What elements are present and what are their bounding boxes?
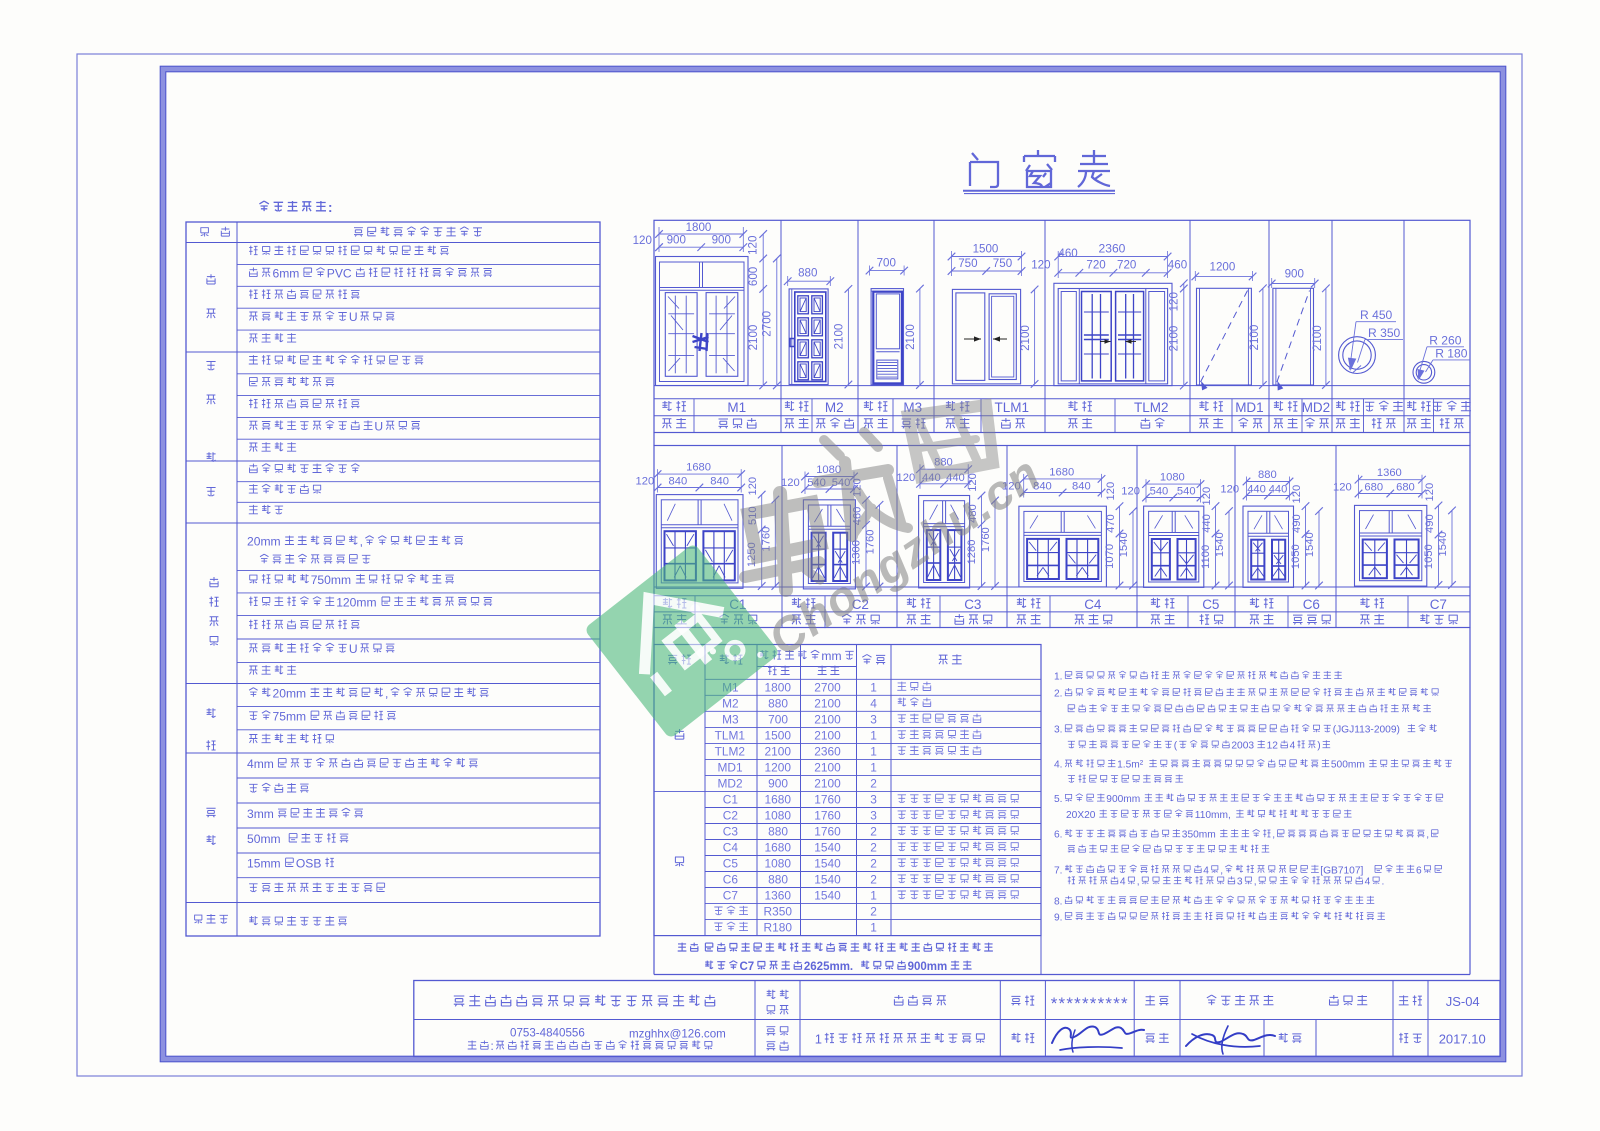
svg-text:4mm: 4mm: [247, 757, 274, 771]
svg-text:4: 4: [1290, 741, 1296, 752]
svg-text:700: 700: [877, 257, 896, 270]
svg-text:1: 1: [815, 1032, 822, 1047]
svg-text:120: 120: [1424, 483, 1436, 502]
svg-text:2: 2: [870, 841, 877, 855]
svg-text:,: ,: [1220, 865, 1223, 876]
svg-text:C4: C4: [723, 841, 739, 855]
svg-text:1200: 1200: [765, 760, 792, 774]
svg-text:U: U: [349, 642, 358, 656]
svg-text:1680: 1680: [765, 793, 792, 807]
svg-text:8.: 8.: [1054, 896, 1063, 907]
svg-text:U: U: [374, 419, 383, 433]
svg-text:2: 2: [870, 873, 877, 887]
svg-text:1080: 1080: [765, 809, 792, 823]
svg-text:50mm: 50mm: [247, 832, 281, 846]
svg-text:R 180: R 180: [1435, 347, 1468, 361]
svg-text:1680: 1680: [1049, 466, 1074, 478]
svg-text:M2: M2: [722, 696, 739, 710]
svg-text:C6: C6: [723, 873, 739, 887]
svg-text:1050: 1050: [1290, 544, 1302, 569]
svg-text:1680: 1680: [765, 841, 792, 855]
svg-text:750: 750: [958, 257, 977, 270]
svg-text:4: 4: [1120, 877, 1126, 888]
svg-text:2100: 2100: [1248, 325, 1261, 351]
svg-text:6mm: 6mm: [273, 266, 300, 280]
svg-text:900: 900: [768, 776, 788, 790]
svg-text:840: 840: [710, 476, 729, 488]
svg-text:1080: 1080: [1160, 472, 1185, 484]
svg-text:C5: C5: [723, 857, 739, 871]
svg-text:120: 120: [897, 472, 916, 484]
svg-text:120: 120: [1220, 484, 1239, 496]
svg-text:.: .: [1382, 877, 1385, 888]
svg-text:680: 680: [1396, 482, 1415, 494]
svg-text:2100: 2100: [765, 744, 792, 758]
svg-text:12: 12: [1267, 741, 1279, 752]
svg-text:3: 3: [1237, 877, 1243, 888]
svg-text:460: 460: [1058, 247, 1077, 260]
svg-text:120: 120: [1291, 485, 1303, 504]
svg-text:TLM1: TLM1: [715, 728, 746, 742]
svg-text:1080: 1080: [765, 857, 792, 871]
svg-text:M1: M1: [727, 400, 746, 415]
svg-text:1: 1: [870, 744, 877, 758]
svg-text:2100: 2100: [814, 712, 841, 726]
svg-text:440: 440: [1269, 484, 1288, 496]
svg-text:C7: C7: [740, 961, 755, 973]
svg-text:OSB: OSB: [296, 857, 322, 871]
svg-text:C1: C1: [723, 793, 739, 807]
svg-text:2003: 2003: [1231, 741, 1254, 752]
svg-text:120: 120: [1168, 292, 1181, 311]
svg-text:120: 120: [1105, 482, 1117, 501]
svg-text:880: 880: [798, 266, 817, 279]
svg-text:4: 4: [1365, 877, 1371, 888]
svg-text:1800: 1800: [765, 680, 792, 694]
svg-text:PVC: PVC: [327, 266, 352, 280]
svg-text:20X20: 20X20: [1066, 810, 1096, 821]
svg-text:540: 540: [1177, 486, 1196, 498]
svg-text:1540: 1540: [814, 873, 841, 887]
svg-text:1760: 1760: [814, 793, 841, 807]
svg-text:C7: C7: [1430, 597, 1447, 612]
svg-text:5.: 5.: [1054, 794, 1063, 805]
svg-text:1760: 1760: [814, 809, 841, 823]
svg-text:C7: C7: [723, 889, 739, 903]
svg-text:1500: 1500: [765, 728, 792, 742]
svg-text:2625mm.: 2625mm.: [804, 961, 853, 973]
svg-text:3: 3: [870, 793, 877, 807]
svg-text:3.: 3.: [1054, 725, 1063, 736]
svg-text:6: 6: [1416, 865, 1422, 876]
svg-text:1: 1: [870, 889, 877, 903]
svg-text:900: 900: [1285, 268, 1304, 281]
svg-text:720: 720: [1117, 258, 1136, 271]
svg-text:470: 470: [1105, 514, 1117, 533]
svg-text:(JGJ113-2009): (JGJ113-2009): [1333, 725, 1400, 736]
svg-text:2100: 2100: [814, 728, 841, 742]
svg-text:,: ,: [1272, 830, 1275, 841]
svg-text:440: 440: [1247, 484, 1266, 496]
svg-text:C2: C2: [723, 809, 739, 823]
svg-text:2100: 2100: [1311, 325, 1324, 351]
svg-text:2700: 2700: [761, 311, 774, 337]
svg-text:6.: 6.: [1054, 830, 1063, 841]
svg-text:): ): [1317, 741, 1320, 752]
svg-text:1: 1: [870, 680, 877, 694]
svg-text:4: 4: [870, 696, 877, 710]
svg-text:20mm: 20mm: [273, 687, 307, 701]
svg-text:2100: 2100: [814, 696, 841, 710]
svg-text:MD1: MD1: [718, 760, 743, 774]
svg-text:2100: 2100: [814, 760, 841, 774]
svg-text:840: 840: [1072, 481, 1091, 493]
svg-text:1: 1: [870, 728, 877, 742]
svg-text:120: 120: [1333, 482, 1352, 494]
svg-text:9.: 9.: [1054, 912, 1063, 923]
svg-text:R350: R350: [764, 905, 793, 919]
svg-text:1540: 1540: [814, 857, 841, 871]
svg-text:TLM1: TLM1: [995, 400, 1030, 415]
svg-text::: :: [491, 1040, 494, 1053]
svg-text:JS-04: JS-04: [1446, 994, 1480, 1009]
svg-text:2: 2: [870, 825, 877, 839]
svg-text:2360: 2360: [1099, 242, 1126, 256]
svg-text:440: 440: [1201, 514, 1213, 533]
svg-text:[GB7107]: [GB7107]: [1320, 865, 1363, 876]
svg-text:1200: 1200: [1210, 261, 1236, 274]
svg-text:2700: 2700: [814, 680, 841, 694]
svg-text:3: 3: [870, 809, 877, 823]
svg-text:120: 120: [1201, 487, 1213, 506]
svg-text:MD2: MD2: [1302, 400, 1331, 415]
svg-text:880: 880: [768, 825, 788, 839]
svg-text::: :: [328, 200, 333, 215]
svg-text:R 350: R 350: [1368, 326, 1401, 340]
svg-text:900mm: 900mm: [908, 961, 948, 973]
svg-text:U: U: [349, 310, 358, 324]
svg-text:880: 880: [768, 696, 788, 710]
svg-text:2017.10: 2017.10: [1439, 1032, 1486, 1047]
svg-text:750: 750: [993, 257, 1012, 270]
svg-text:1800: 1800: [686, 221, 712, 234]
svg-text:2.: 2.: [1054, 688, 1063, 699]
svg-text:1.: 1.: [1054, 671, 1063, 682]
svg-text:350mm: 350mm: [1182, 830, 1216, 841]
svg-text:C5: C5: [1202, 597, 1219, 612]
svg-text:120: 120: [636, 476, 655, 488]
svg-text:R 260: R 260: [1429, 334, 1462, 348]
svg-text:TLM2: TLM2: [715, 744, 746, 758]
svg-text:120: 120: [747, 236, 760, 255]
svg-text:1500: 1500: [973, 243, 999, 256]
svg-text:120: 120: [1031, 258, 1050, 271]
svg-text:M3: M3: [722, 712, 739, 726]
svg-text:2100: 2100: [1019, 325, 1032, 351]
svg-text:1680: 1680: [686, 462, 711, 474]
svg-text:120: 120: [633, 234, 652, 247]
svg-text:840: 840: [669, 476, 688, 488]
svg-text:20mm: 20mm: [247, 535, 281, 549]
svg-text:3mm: 3mm: [247, 807, 274, 821]
svg-text:R180: R180: [764, 921, 793, 935]
svg-text:1050: 1050: [1423, 544, 1435, 569]
svg-text:2: 2: [870, 776, 877, 790]
svg-text:900: 900: [667, 234, 686, 247]
svg-text:720: 720: [1086, 258, 1105, 271]
svg-text:4: 4: [1203, 865, 1209, 876]
svg-text:1: 1: [870, 760, 877, 774]
svg-text:900: 900: [712, 234, 731, 247]
svg-text:,: ,: [385, 687, 388, 701]
svg-text:120: 120: [747, 477, 759, 496]
svg-text:1.5m²: 1.5m²: [1117, 760, 1144, 771]
svg-text:490: 490: [1424, 514, 1436, 533]
svg-text:2100: 2100: [747, 325, 760, 351]
svg-text:1: 1: [870, 921, 877, 935]
svg-text:880: 880: [768, 873, 788, 887]
svg-text:2: 2: [870, 857, 877, 871]
svg-text:1360: 1360: [765, 889, 792, 903]
svg-text:120mm: 120mm: [336, 595, 376, 609]
svg-text:1100: 1100: [1200, 545, 1212, 569]
svg-text:680: 680: [1364, 482, 1383, 494]
svg-text:2360: 2360: [814, 744, 841, 758]
svg-text:1760: 1760: [814, 825, 841, 839]
svg-text:C3: C3: [964, 597, 981, 612]
svg-text:2100: 2100: [833, 324, 846, 350]
svg-text:2100: 2100: [1168, 326, 1181, 352]
svg-text:MD2: MD2: [718, 776, 743, 790]
svg-text:750mm: 750mm: [311, 573, 351, 587]
svg-text:,: ,: [1254, 877, 1257, 888]
svg-text:,: ,: [360, 535, 363, 549]
svg-text:R 450: R 450: [1360, 308, 1393, 322]
svg-text:M2: M2: [825, 400, 844, 415]
svg-text:1540: 1540: [814, 841, 841, 855]
svg-text:3: 3: [870, 712, 877, 726]
svg-text:2100: 2100: [904, 324, 917, 350]
svg-text:900mm: 900mm: [1106, 794, 1140, 805]
svg-text:700: 700: [768, 712, 788, 726]
svg-text:0753-4840556: 0753-4840556: [510, 1027, 585, 1040]
svg-text:2: 2: [870, 905, 877, 919]
svg-text:120: 120: [1121, 486, 1140, 498]
svg-text:MD1: MD1: [1235, 400, 1264, 415]
svg-text:C3: C3: [723, 825, 739, 839]
svg-text:500mm: 500mm: [1331, 760, 1365, 771]
svg-text:1540: 1540: [814, 889, 841, 903]
svg-text:7.: 7.: [1054, 865, 1063, 876]
svg-text:**********: **********: [1051, 994, 1129, 1013]
svg-text:C4: C4: [1084, 597, 1102, 612]
svg-text:(: (: [1174, 741, 1178, 752]
svg-text:110mm,: 110mm,: [1195, 810, 1231, 821]
svg-text:TLM2: TLM2: [1134, 400, 1169, 415]
svg-text:490: 490: [1291, 514, 1303, 533]
svg-text:4.: 4.: [1054, 760, 1063, 771]
svg-text:mzghhx@126.com: mzghhx@126.com: [629, 1028, 726, 1041]
svg-text:C6: C6: [1303, 597, 1320, 612]
svg-text:540: 540: [1150, 486, 1169, 498]
svg-text:880: 880: [1258, 469, 1277, 481]
svg-text:2100: 2100: [814, 776, 841, 790]
svg-text:,: ,: [1426, 830, 1429, 841]
svg-text:75mm: 75mm: [273, 710, 307, 724]
svg-text:15mm: 15mm: [247, 857, 281, 871]
svg-text:,: ,: [1137, 877, 1140, 888]
svg-text:600: 600: [747, 267, 760, 286]
svg-text:mm: mm: [821, 649, 841, 663]
svg-text:1070: 1070: [1104, 544, 1116, 569]
svg-text:1360: 1360: [1377, 467, 1402, 479]
